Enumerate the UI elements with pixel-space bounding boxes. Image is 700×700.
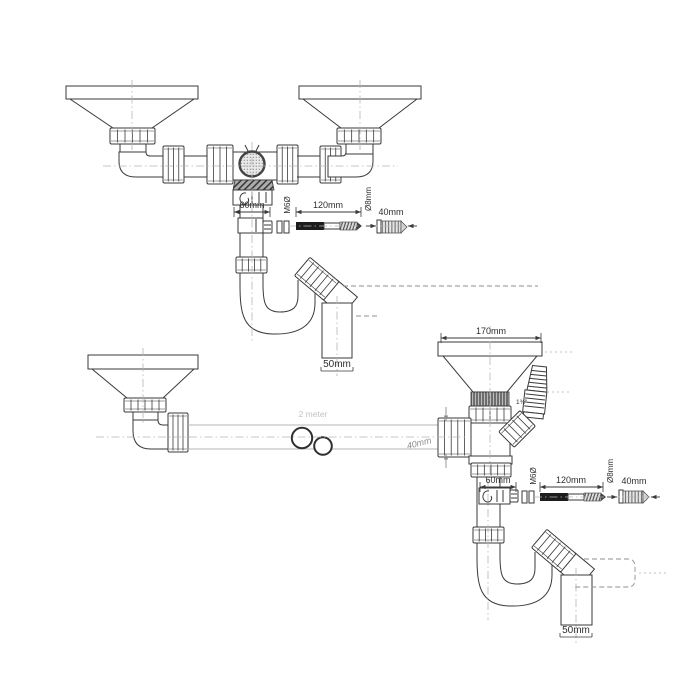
connection-pipe	[188, 425, 438, 455]
elbow-nut	[168, 413, 188, 452]
wall-plug-2	[619, 490, 649, 503]
outlet-pipe-2	[561, 575, 592, 625]
dim-bracket-width-2: 60mm	[485, 475, 510, 485]
elbow-left	[119, 146, 184, 183]
dim-screw-thread-2: M6Ø	[529, 467, 538, 484]
pipe-break-icon	[314, 437, 332, 455]
dimensions: 60mm M6Ø 120mm Ø8mm 40mm 50mm 170mm 1¾" …	[234, 187, 660, 637]
overflow-hose-barb	[522, 365, 549, 419]
bracket-screw-head	[263, 221, 272, 233]
thread-size-label: 1¾"	[516, 399, 528, 406]
tee-fitting	[207, 145, 298, 190]
dim-screw-thread-1: M6Ø	[283, 196, 292, 213]
funnel-nut	[124, 398, 166, 412]
dim-outlet-1: 50mm	[323, 359, 351, 370]
plumbing-technical-drawing: 60mm M6Ø 120mm Ø8mm 40mm 50mm 170mm 1¾" …	[0, 0, 700, 700]
dim-outlet-2: 50mm	[562, 625, 590, 636]
dim-funnel-width: 170mm	[476, 326, 506, 336]
wall-plug-1	[377, 220, 407, 233]
dim-plug-length-2: 40mm	[621, 476, 646, 486]
pipe-length-label: 2 meter	[299, 409, 328, 419]
drain-body	[438, 406, 535, 477]
funnel-nut	[337, 128, 381, 144]
bracket-screw-head	[510, 490, 518, 502]
trap-inlet-nut	[473, 527, 504, 543]
wall-bracket-1	[233, 190, 289, 233]
tee-nut-left	[207, 145, 233, 184]
body-side-nut	[438, 418, 471, 457]
drawing-canvas: 60mm M6Ø 120mm Ø8mm 40mm 50mm 170mm 1¾" …	[0, 0, 700, 700]
dim-screw-length-1: 120mm	[313, 200, 343, 210]
tee-base	[233, 180, 274, 190]
funnel-nut	[110, 128, 155, 144]
elbow-nut	[163, 146, 184, 183]
p-trap-1	[236, 257, 357, 358]
diagram-double-bowl-kit	[66, 86, 421, 358]
dim-plug-length-1: 40mm	[378, 207, 403, 217]
dim-plug-diameter-2: Ø8mm	[606, 459, 615, 483]
wall-bracket-2	[479, 488, 534, 504]
dim-bracket-width-1: 60mm	[239, 200, 264, 210]
dim-screw-length-2: 120mm	[556, 475, 586, 485]
trap-inlet-nut	[236, 257, 267, 273]
pipe-break-icon	[292, 428, 312, 448]
tee-nut-right	[277, 145, 298, 184]
dim-plug-diameter-1: Ø8mm	[364, 187, 373, 211]
